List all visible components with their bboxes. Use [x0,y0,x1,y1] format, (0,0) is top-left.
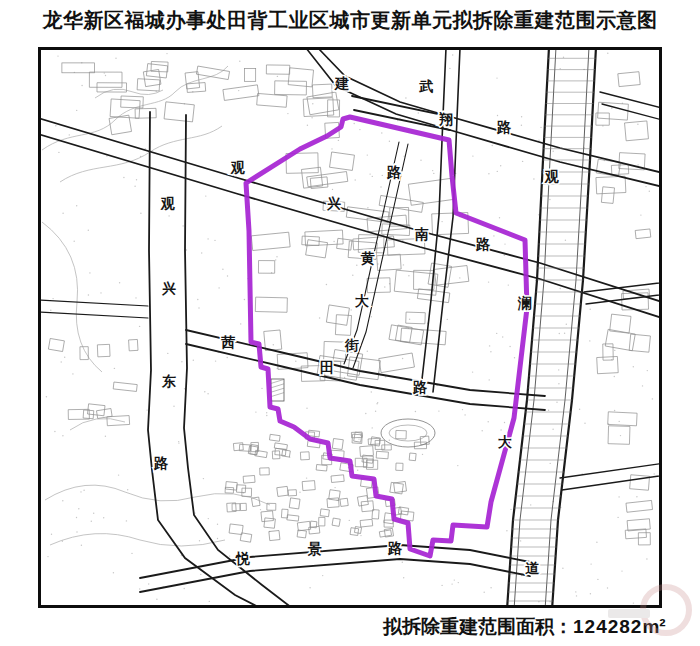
speckle-dot [255,411,256,412]
speckle-dot [277,76,278,77]
building-outline [331,475,344,483]
speckle-dot [617,517,618,518]
building-outline [237,485,246,493]
road-label-char: 观 [160,195,175,211]
speckle-dot [244,299,245,300]
speckle-dot [47,556,48,557]
speckle-dot [287,113,288,114]
speckle-dot [69,134,70,135]
building-outline [396,463,403,470]
building-outline [89,72,122,87]
speckle-dot [509,346,510,347]
speckle-dot [76,531,77,532]
speckle-dot [338,140,339,141]
speckle-dot [61,361,62,362]
road-label-char: 武 [418,78,433,94]
road-label-char: 景 [307,541,322,557]
speckle-dot [351,309,352,310]
speckle-dot [433,173,434,174]
speckle-dot [354,123,355,124]
speckle-dot [209,601,210,602]
building-outline [300,452,309,460]
speckle-dot [168,215,169,216]
road-label-char: 路 [412,379,428,395]
building-outline [288,490,297,496]
building-outline [307,92,339,115]
building-outline [97,344,110,357]
speckle-dot [127,489,128,490]
speckle-dot [266,412,267,413]
speckle-dot [520,540,521,541]
speckle-dot [148,583,149,584]
building-outline [62,63,95,73]
speckle-dot [58,152,59,153]
speckle-dot [356,265,357,266]
road-west-road [41,300,148,318]
speckle-dot [420,160,421,161]
road-north-south-road [421,50,460,392]
road-label-char: 路 [475,236,491,252]
speckle-dot [389,141,390,142]
speckle-dot [649,191,650,192]
speckle-dot [184,388,185,389]
speckle-dot [497,115,498,116]
speckle-dot [371,316,372,317]
speckle-dot [217,538,218,539]
speckle-dot [633,366,634,367]
speckle-dot [331,148,332,149]
speckle-dot [409,319,410,320]
road-label-char: 黄 [360,250,375,266]
page: { "title": "龙华新区福城办事处田背工业区城市更新单元拟拆除重建范围示… [0,0,700,646]
speckle-dot [208,518,209,519]
speckle-dot [178,441,179,442]
speckle-dot [575,591,576,592]
road-line [421,50,446,388]
road-line [433,50,460,392]
speckle-dot [115,58,116,59]
building-outline [135,108,156,118]
speckle-dot [550,463,551,464]
speckle-dot [489,345,490,346]
speckle-dot [207,393,208,394]
building-outline [251,232,290,250]
building-outline [366,460,377,469]
road-line [552,50,596,605]
speckle-dot [457,465,458,466]
speckle-dot [309,587,310,588]
building-outline [638,533,650,545]
speckle-dot [105,436,106,437]
speckle-dot [51,534,52,535]
speckle-dot [139,588,140,589]
speckle-dot [197,299,198,300]
speckle-dot [203,478,204,479]
speckle-dot [451,583,452,584]
speckle-dot [402,562,403,563]
speckle-dot [590,563,591,564]
building-outline [260,468,270,475]
speckle-dot [240,323,241,324]
speckle-dot [88,294,89,295]
speckle-dot [553,151,554,152]
speckle-dot [193,360,194,361]
road-label-char: 路 [387,540,403,556]
speckle-dot [563,57,564,58]
speckle-dot [522,161,523,162]
speckle-dot [464,414,465,415]
building-outline [266,65,289,74]
building-outline [258,261,274,274]
speckle-dot [607,587,608,588]
road-guanlan-avenue [507,50,596,605]
speckle-dot [447,319,448,320]
speckle-dot [449,68,450,69]
building-outline [367,278,390,293]
building-outline [240,503,246,510]
area-caption-label: 拟拆除重建范围面积： [383,616,573,637]
speckle-dot [295,361,296,362]
speckle-dot [521,116,522,117]
speckle-dot [365,413,366,414]
building-outline [264,330,282,351]
speckle-dot [472,371,473,372]
speckle-dot [227,357,228,358]
speckle-dot [596,542,597,543]
building-outline [396,430,407,439]
road-label-char: 澜 [517,295,532,311]
speckle-dot [506,530,507,531]
building-outline [601,187,614,204]
road-label-char: 建 [334,75,349,91]
speckle-dot [620,435,621,436]
speckle-dot [441,585,442,586]
speckle-dot [589,340,590,341]
speckle-dot [88,230,89,231]
speckle-dot [273,344,274,345]
speckle-dot [64,357,65,358]
speckle-dot [488,421,489,422]
speckle-dot [372,427,373,428]
speckle-dot [530,504,531,505]
speckle-dot [178,442,179,443]
speckle-dot [201,252,202,253]
speckle-dot [642,385,643,386]
road-east-road-1 [600,92,659,130]
speckle-dot [136,179,137,180]
road-label-char: 观 [544,168,559,184]
speckle-dot [349,520,350,521]
contour-line [45,485,270,505]
road-label-char: 大 [355,293,369,309]
speckle-dot [611,108,612,109]
speckle-dot [62,435,63,436]
road-label: 路 [386,164,402,180]
building-outline [357,496,368,507]
speckle-dot [81,545,82,546]
building-outline [360,446,374,457]
speckle-dot [540,127,541,128]
building-outline [330,152,355,170]
road-label-char: 兴 [161,280,176,296]
road-line [41,300,148,306]
speckle-dot [118,474,119,475]
speckle-dot [647,370,648,371]
road-label-char: 东 [161,373,176,389]
speckle-dot [377,402,378,403]
speckle-dot [422,454,423,455]
building-outline [434,266,469,286]
road-line [514,50,556,605]
building-outline [361,501,374,512]
building-outline [360,519,373,527]
speckle-dot [562,568,563,569]
speckle-dot [552,429,553,430]
speckle-dot [186,249,187,250]
speckle-dot [408,275,409,276]
road-label: 建 [334,75,349,91]
road-line [562,470,659,490]
speckle-dot [558,383,559,384]
building-outline [113,382,137,391]
road-line [600,92,659,118]
speckle-dot [334,487,335,488]
building-outline [223,85,259,101]
building-outline [409,453,416,461]
speckle-dot [496,77,497,78]
speckle-dot [104,72,105,73]
speckle-dot [367,351,368,352]
speckle-dot [352,275,353,276]
building-outline [269,434,280,441]
speckle-dot [266,415,267,416]
speckle-dot [504,243,505,244]
speckle-dot [333,241,334,242]
speckle-dot [135,297,136,298]
speckle-dot [521,125,522,126]
speckle-dot [199,540,200,541]
speckle-dot [83,490,84,491]
speckle-dot [357,470,358,471]
area-caption: 拟拆除重建范围面积：124282m² [383,614,666,640]
speckle-dot [214,240,215,241]
speckle-dot [76,205,77,206]
speckle-dot [482,430,483,431]
speckle-dot [62,500,63,501]
building-outline [406,312,426,324]
speckle-dot [312,103,313,104]
map-decor [271,379,435,447]
building-outline [340,498,348,506]
road-labels: 观兴东路观兴南路武翔路建路黄大街茜田路观澜大道悦景路 [153,75,559,576]
speckle-dot [504,255,505,256]
building-outline [233,443,243,451]
building-outline [107,416,130,426]
road-label-char: 悦 [235,550,250,566]
road-label: 黄大街 [344,250,375,353]
speckle-dot [140,156,141,157]
speckle-dot [488,173,489,174]
speckle-dot [381,132,382,133]
speckle-dot [458,582,459,583]
speckle-dot [113,572,114,573]
speckle-dot [72,373,73,374]
speckle-dot [46,396,47,397]
speckle-dot [52,298,53,299]
speckle-dot [403,577,404,578]
road-east-road-3 [560,458,659,490]
speckle-dot [372,176,373,177]
building-outline [316,465,327,471]
speckle-dot [472,155,473,156]
speckle-dot [500,429,501,430]
speckle-dot [360,535,361,536]
sports-field-inner [389,425,427,441]
speckle-dot [307,125,308,126]
building-outline [289,498,300,509]
speckle-dot [371,391,372,392]
building-outline [635,229,651,239]
speckle-dot [55,125,56,126]
building-outline [261,511,273,522]
speckle-dot [181,361,182,362]
speckle-dot [81,85,82,86]
speckle-dot [126,520,127,521]
speckle-dot [89,272,90,273]
speckle-dot [184,588,185,589]
road-label-char: 街 [344,337,359,353]
speckle-dot [614,376,615,377]
road-line [140,545,530,578]
speckle-dot [78,508,79,509]
speckle-dot [489,379,490,380]
speckle-dot [54,431,55,432]
speckle-dot [80,491,81,492]
speckle-dot [418,112,419,113]
speckle-dot [590,309,591,310]
speckle-dot [105,75,106,76]
speckle-dot [500,165,501,166]
building-outline [243,475,255,483]
speckle-dot [548,410,549,411]
building-outline [245,69,256,82]
building-outline [275,81,307,95]
speckle-dot [204,391,205,392]
speckle-dot [134,186,135,187]
hatch-line [271,384,284,388]
speckle-dot [50,310,51,311]
speckle-dot [103,517,104,518]
contour-line [70,418,125,430]
speckle-dot [156,599,157,600]
building-outline [608,426,630,445]
building-outline [306,240,328,258]
speckle-dot [558,369,559,370]
speckle-dot [119,282,120,283]
speckle-dot [238,90,239,91]
speckle-dot [222,269,223,270]
building-outline [596,176,626,194]
speckle-dot [261,388,262,389]
speckle-dot [260,509,261,510]
speckle-dot [76,517,77,518]
speckle-dot [167,353,168,354]
speckle-dot [510,509,511,510]
speckle-dot [344,377,345,378]
speckle-dot [276,256,277,257]
road-line [140,559,530,592]
building-outline [618,72,640,87]
road-label-char: 南 [414,226,429,242]
building-outline [225,487,234,493]
speckle-dot [403,264,404,265]
speckle-dot [652,398,653,399]
speckle-dot [198,307,199,308]
speckle-dot [654,473,655,474]
building-outline [420,436,429,445]
area-unit: m² [642,616,665,637]
speckle-dot [462,409,463,410]
building-outline [269,530,280,540]
speckle-dot [402,358,403,359]
road-label-char: 翔 [438,111,453,127]
contour-lines [42,66,270,546]
speckle-dot [508,284,509,285]
speckle-dot [326,284,327,285]
speckle-dot [239,61,240,62]
building-outline [379,353,415,373]
speckle-dot [322,575,323,576]
speckle-dot [579,409,580,410]
building-outline [229,524,243,535]
speckle-dot [492,145,493,146]
road-label-char: 道 [525,560,540,576]
speckle-dot [215,360,216,361]
hatch-line [271,393,284,397]
speckle-dot [454,579,455,580]
building-outline [379,530,391,537]
speckle-dot [618,496,619,497]
road-label-char: 路 [386,164,402,180]
speckle-dot [614,410,615,411]
speckle-dot [275,259,276,260]
speckle-dot [389,440,390,441]
speckle-dot [114,368,115,369]
road-line [507,50,549,605]
speckle-dot [306,408,307,409]
speckle-dot [100,292,101,293]
building-outline [187,83,206,93]
speckle-dot [556,402,557,403]
speckle-dot [490,351,491,352]
speckle-dot [93,513,94,514]
speckle-dot [607,53,608,54]
building-outline [275,448,286,455]
speckle-dot [514,357,515,358]
speckle-dot [499,217,500,218]
building-outline [598,102,629,120]
building-outline [277,486,289,496]
building-outline [320,509,329,517]
speckle-dot [636,496,637,497]
speckle-dot [367,207,368,208]
speckle-dot [590,593,591,594]
page-title: 龙华新区福城办事处田背工业区城市更新单元拟拆除重建范围示意图 [0,7,700,34]
building-outline [376,451,388,459]
area-value: 124282 [573,616,642,637]
road-line [41,312,148,318]
speckle-dot [559,333,560,334]
